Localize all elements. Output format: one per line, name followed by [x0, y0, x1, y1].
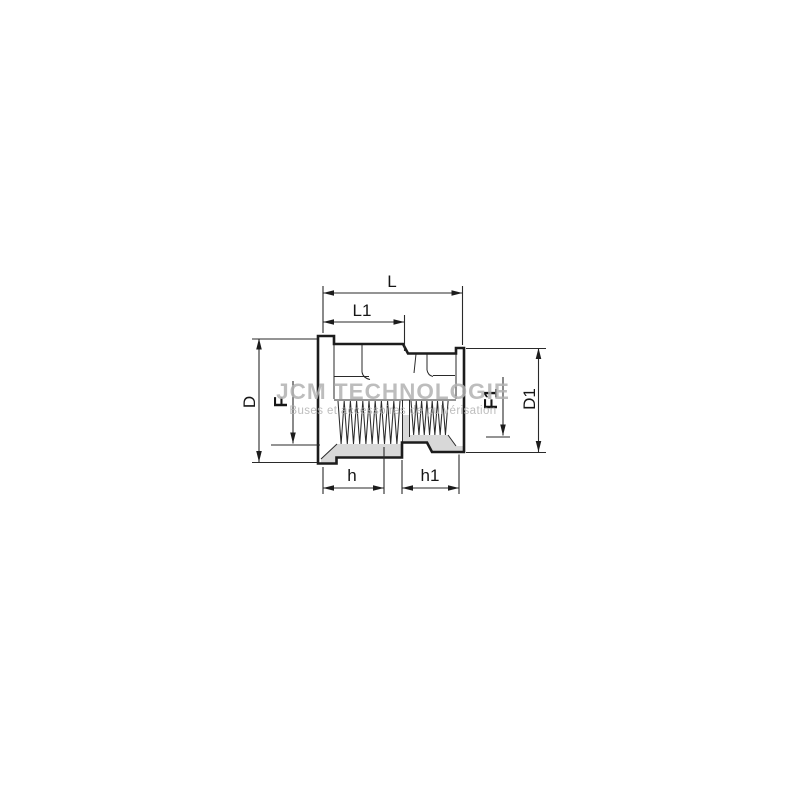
dimension-L: L	[323, 272, 463, 345]
right-cone-line-a	[414, 354, 416, 373]
F1-arrow-down	[500, 425, 506, 436]
L1-label: L1	[353, 301, 372, 320]
watermark-tagline-text: Buses et accessoires de pulvérisation	[289, 405, 496, 417]
D-arrow-top	[256, 339, 262, 350]
L1-arrow-right	[394, 319, 405, 324]
h1-arrow-right	[448, 485, 459, 490]
L-arrow-right	[452, 290, 463, 295]
watermark-brand-text: JCM TECHNOLOGIE	[276, 379, 510, 404]
L1-arrow-left	[323, 319, 334, 324]
right-cone-curve	[427, 370, 433, 377]
D1-label: D1	[520, 388, 539, 410]
watermark: JCM TECHNOLOGIE Buses et accessoires de …	[276, 379, 510, 417]
h-arrow-left	[323, 485, 334, 490]
h-label: h	[347, 466, 356, 485]
technical-drawing-canvas: L L1 D F	[0, 0, 800, 800]
D-label: D	[240, 396, 259, 408]
h-arrow-right	[373, 485, 384, 490]
fitting-dimension-drawing: L L1 D F	[0, 0, 800, 800]
center-wall-fill	[402, 415, 410, 443]
D1-arrow-bottom	[536, 441, 542, 452]
dimension-h1: h1	[402, 455, 459, 495]
F-arrow-down	[290, 433, 296, 444]
L-label: L	[387, 272, 396, 291]
L-arrow-left	[323, 290, 334, 295]
D-arrow-bottom	[256, 451, 262, 462]
D1-arrow-top	[536, 348, 542, 359]
h1-label: h1	[421, 466, 440, 485]
h1-arrow-left	[402, 485, 413, 490]
